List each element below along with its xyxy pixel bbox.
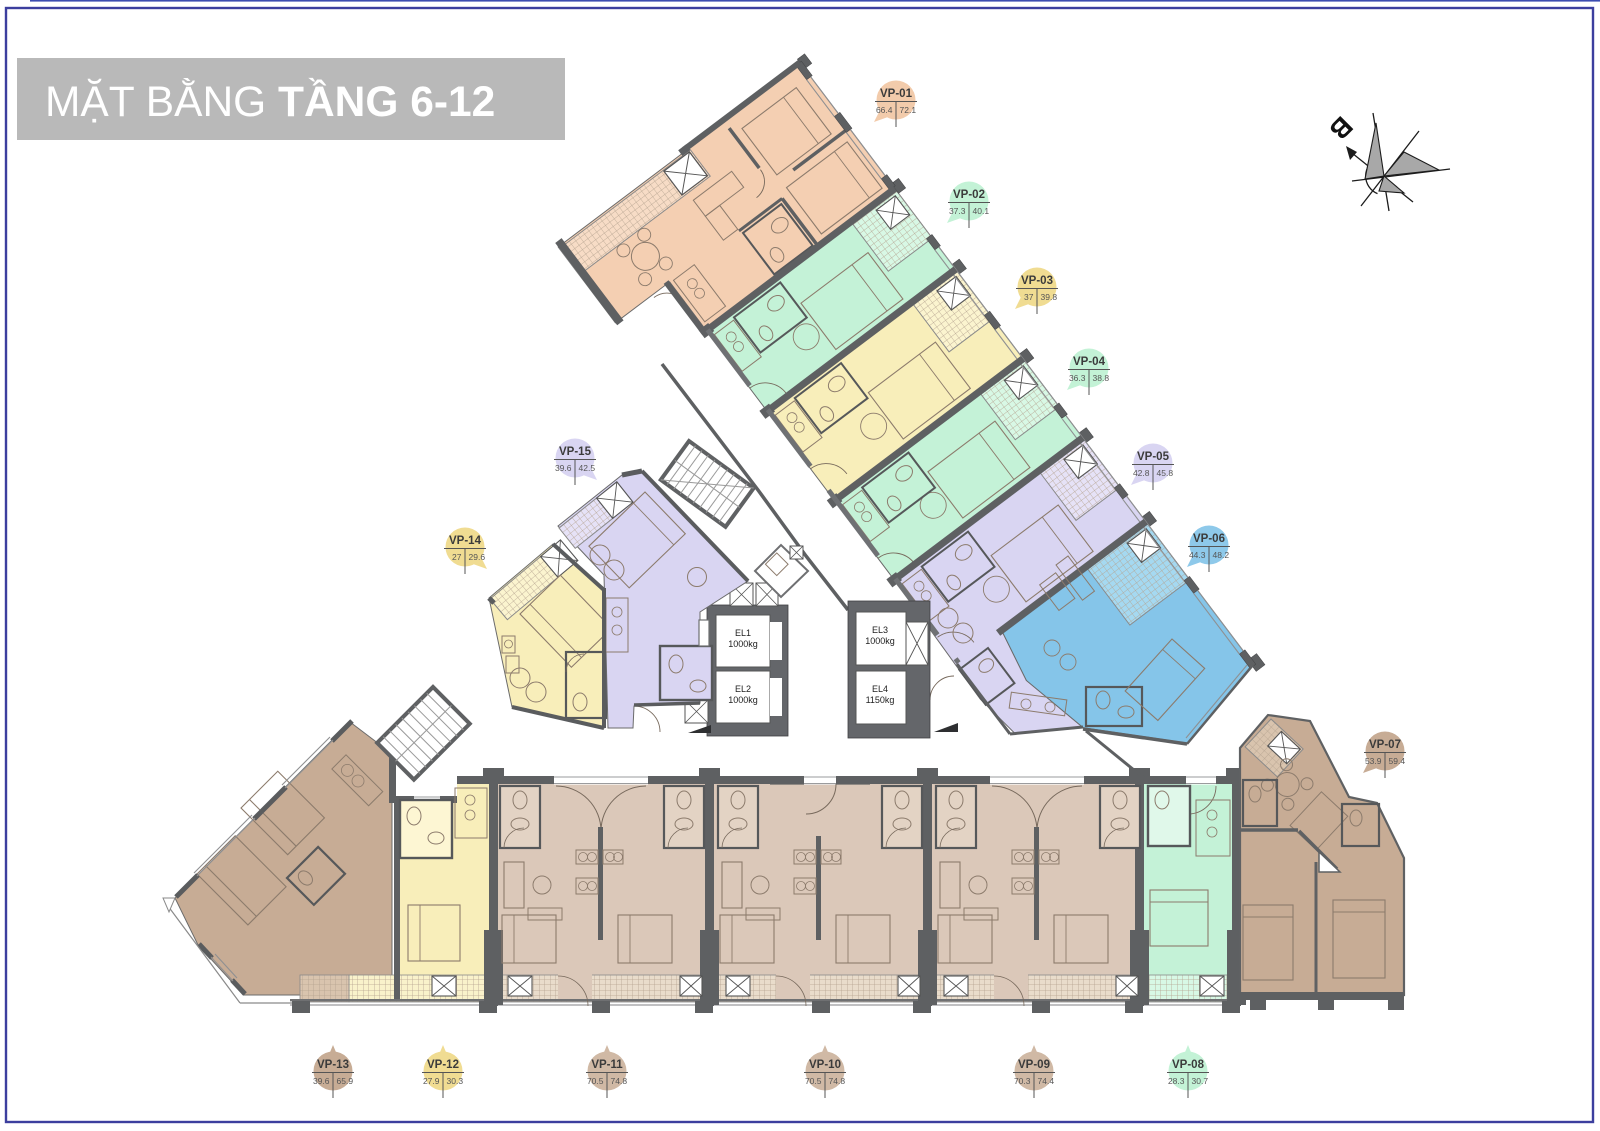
svg-text:70.3: 70.3 [1014,1076,1031,1086]
svg-text:VP-09: VP-09 [1018,1059,1050,1071]
svg-text:66.4: 66.4 [876,105,893,115]
svg-text:72.1: 72.1 [900,105,917,115]
svg-text:37: 37 [1024,292,1034,302]
svg-text:EL4: EL4 [872,684,888,694]
svg-text:29.6: 29.6 [469,552,486,562]
svg-text:45.8: 45.8 [1157,468,1174,478]
svg-text:1000kg: 1000kg [865,636,895,646]
svg-text:VP-04: VP-04 [1073,356,1106,368]
svg-text:30.7: 30.7 [1192,1076,1209,1086]
svg-text:VP-15: VP-15 [559,446,592,458]
svg-text:40.1: 40.1 [973,206,990,216]
svg-text:VP-06: VP-06 [1193,533,1225,545]
svg-text:44.3: 44.3 [1189,550,1206,560]
svg-text:VP-01: VP-01 [880,88,913,100]
svg-text:VP-08: VP-08 [1172,1059,1205,1071]
svg-text:EL1: EL1 [735,628,751,638]
svg-text:74.4: 74.4 [1038,1076,1055,1086]
svg-text:VP-13: VP-13 [317,1059,349,1071]
svg-text:70.5: 70.5 [587,1076,604,1086]
svg-text:VP-11: VP-11 [591,1059,623,1071]
svg-text:59.4: 59.4 [1389,756,1406,766]
svg-text:30.3: 30.3 [447,1076,464,1086]
svg-text:42.5: 42.5 [579,463,596,473]
svg-text:VP-03: VP-03 [1021,275,1053,287]
svg-text:1000kg: 1000kg [728,695,758,705]
svg-text:39.6: 39.6 [555,463,572,473]
svg-text:EL3: EL3 [872,625,888,635]
svg-text:27: 27 [452,552,462,562]
svg-text:53.9: 53.9 [1365,756,1382,766]
svg-text:VP-12: VP-12 [427,1059,459,1071]
svg-text:65.9: 65.9 [337,1076,354,1086]
svg-text:42.8: 42.8 [1133,468,1150,478]
svg-text:VP-10: VP-10 [809,1059,841,1071]
svg-text:VP-07: VP-07 [1369,739,1401,751]
svg-text:27.9: 27.9 [423,1076,440,1086]
svg-text:36.3: 36.3 [1069,373,1086,383]
svg-text:74.8: 74.8 [829,1076,846,1086]
svg-text:39.8: 39.8 [1041,292,1058,302]
svg-text:38.8: 38.8 [1093,373,1110,383]
svg-text:74.8: 74.8 [611,1076,628,1086]
svg-text:VP-02: VP-02 [953,189,985,201]
svg-text:VP-05: VP-05 [1137,451,1170,463]
svg-text:48.2: 48.2 [1213,550,1230,560]
svg-text:MẶT BẰNG TẦNG 6-12: MẶT BẰNG TẦNG 6-12 [45,78,495,126]
svg-text:28.3: 28.3 [1168,1076,1185,1086]
svg-text:1000kg: 1000kg [728,639,758,649]
svg-text:70.5: 70.5 [805,1076,822,1086]
svg-text:1150kg: 1150kg [866,695,895,705]
svg-text:VP-14: VP-14 [449,535,482,547]
svg-text:37.3: 37.3 [949,206,966,216]
svg-text:EL2: EL2 [735,684,751,694]
svg-text:39.6: 39.6 [313,1076,330,1086]
